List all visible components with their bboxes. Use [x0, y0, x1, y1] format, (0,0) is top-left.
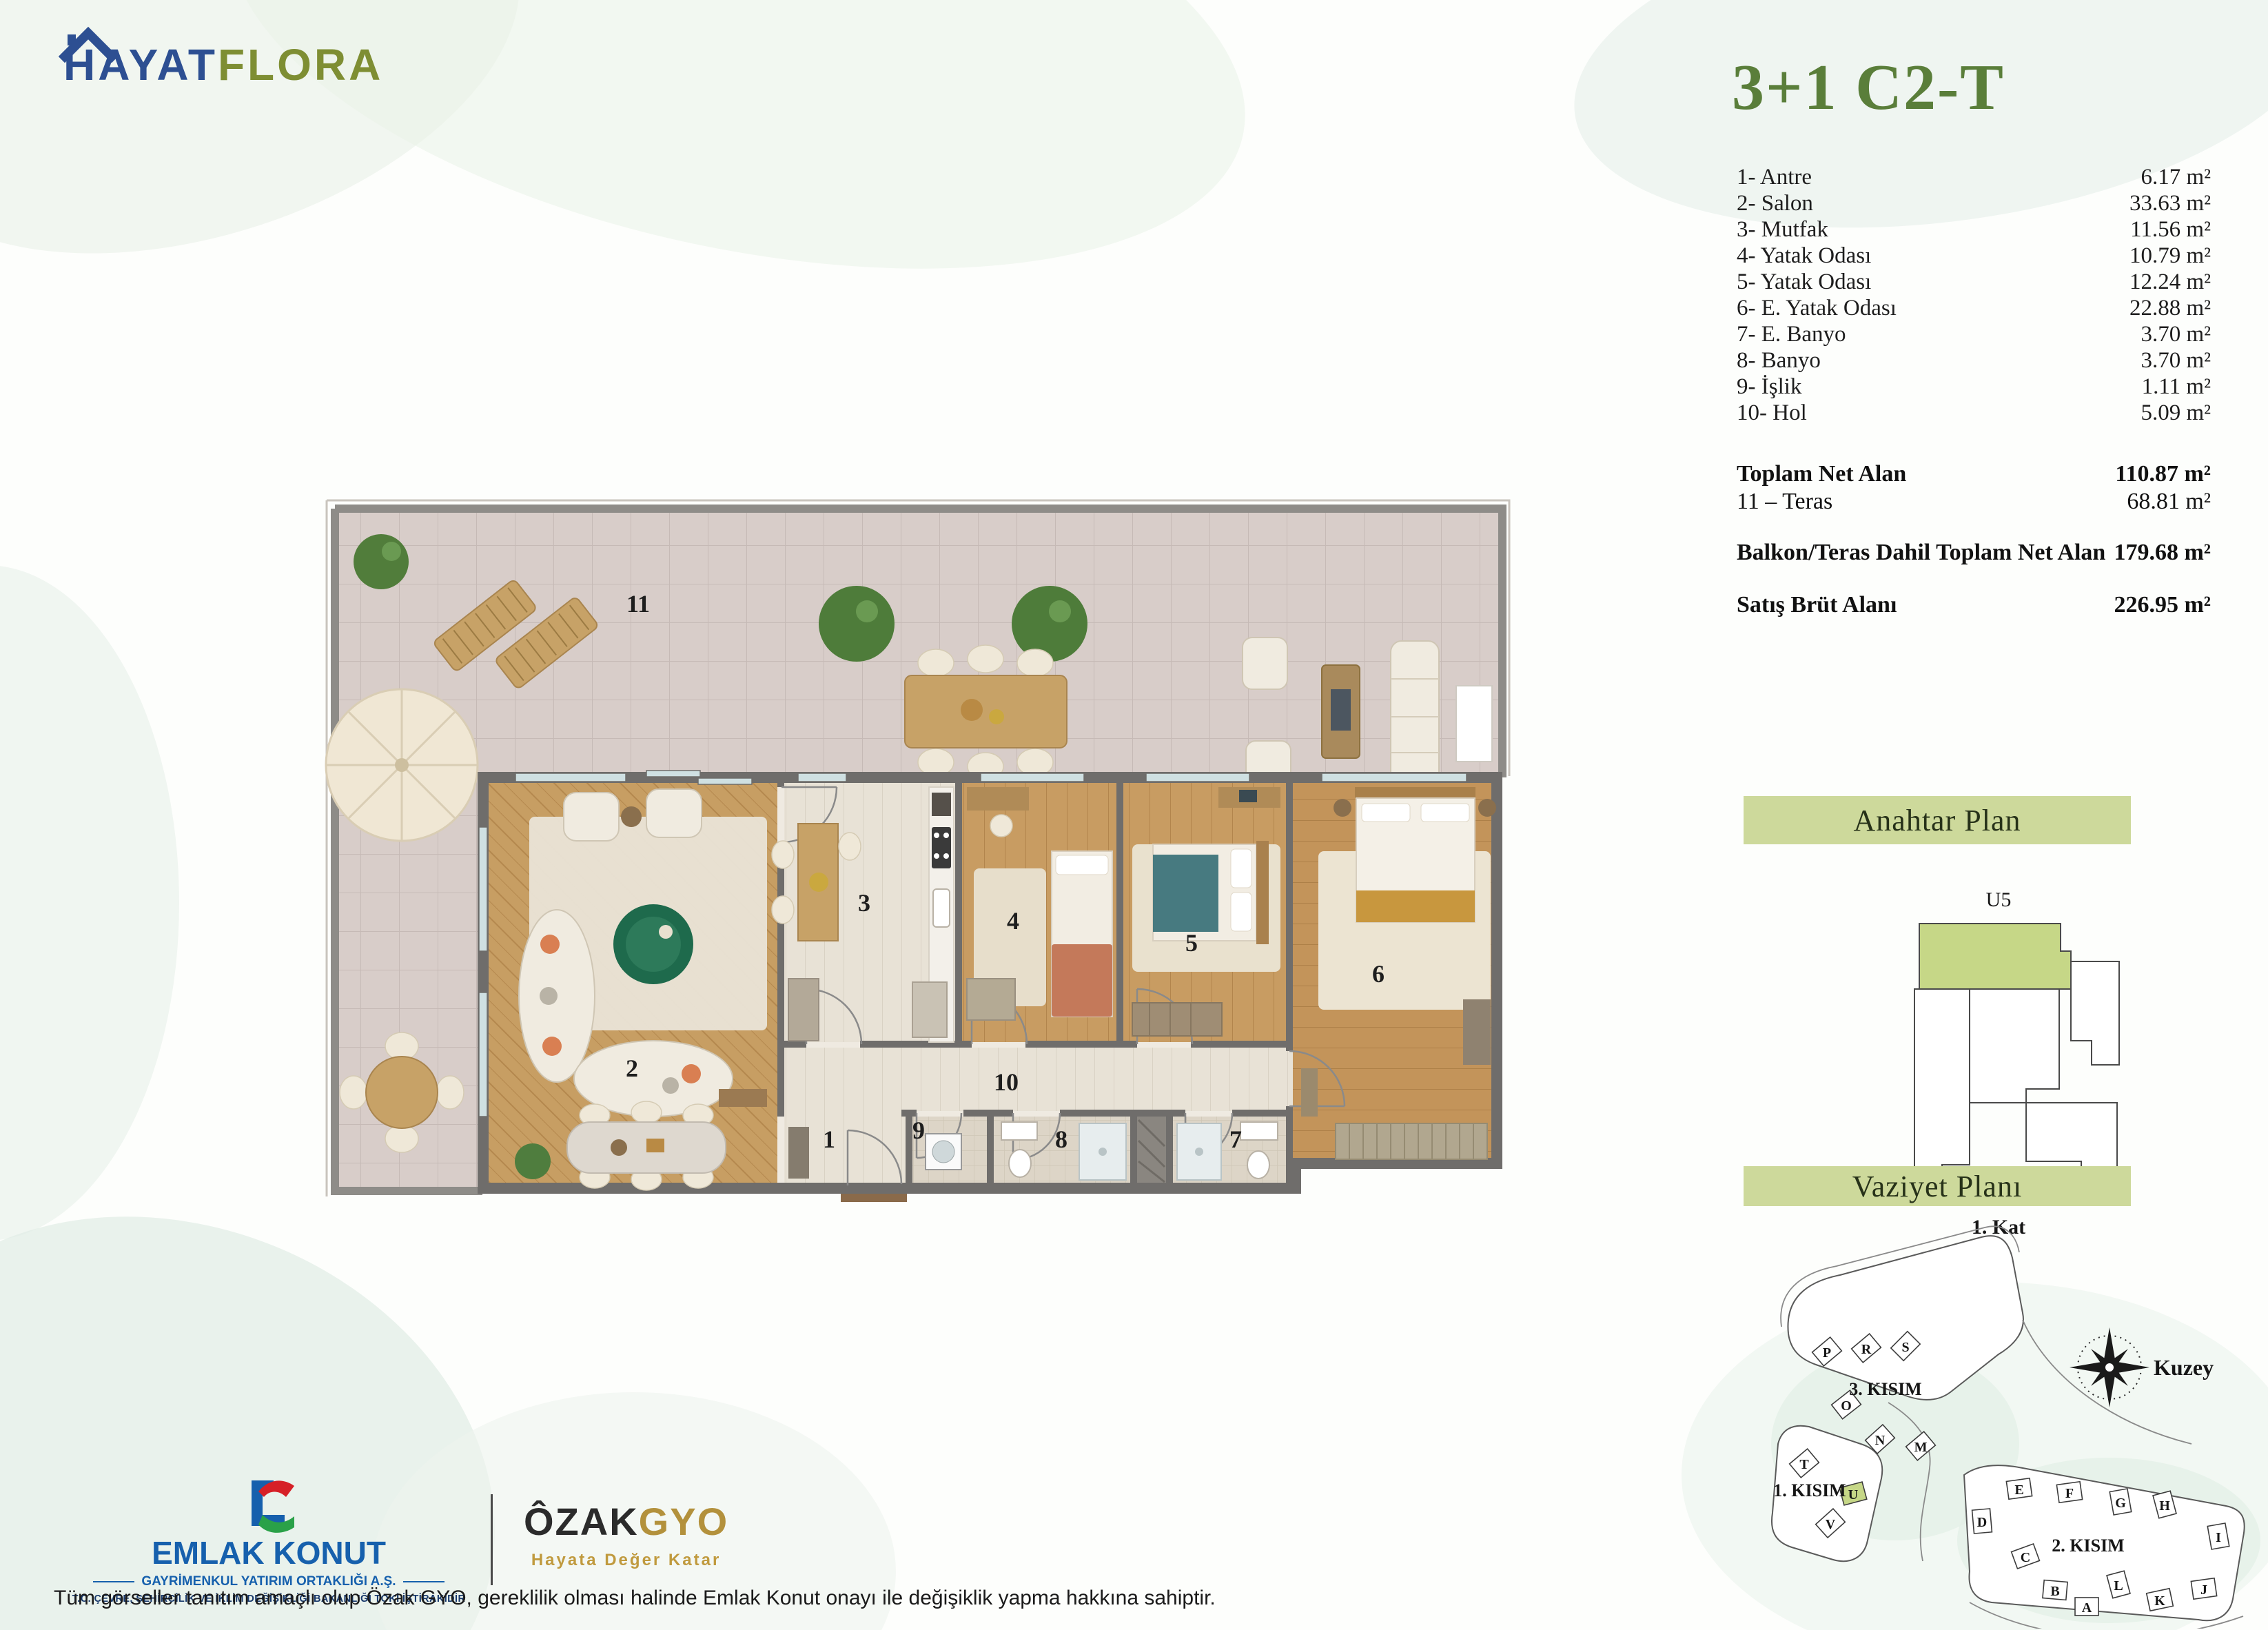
room-area-list: 1- Antre6.17 m² 2- Salon33.63 m² 3- Mutf…	[1737, 164, 2211, 426]
room-number-7: 7	[1229, 1125, 1242, 1153]
key-plan-unit-outline	[2071, 961, 2119, 1065]
floor-plan: 1123456101987	[323, 469, 1518, 1237]
svg-text:U: U	[1848, 1487, 1858, 1502]
site-building-F: F	[2056, 1482, 2082, 1503]
site-building-E: E	[2006, 1478, 2032, 1500]
room-number-8: 8	[1055, 1125, 1067, 1153]
key-plan-header: Anahtar Plan	[1744, 796, 2131, 844]
svg-text:P: P	[1823, 1345, 1831, 1361]
room-row: 10- Hol5.09 m²	[1737, 400, 2211, 426]
ozak-gyo-logo: ÔZAKGYO Hayata Değer Katar	[524, 1502, 728, 1570]
entry-threshold	[841, 1194, 907, 1202]
room-row: 6- E. Yatak Odası22.88 m²	[1737, 295, 2211, 321]
summary-row: Satış Brüt Alanı226.95 m²	[1737, 591, 2211, 619]
room-row: 4- Yatak Odası10.79 m²	[1737, 243, 2211, 269]
svg-text:C: C	[2021, 1550, 2030, 1565]
room-number-6: 6	[1372, 960, 1385, 988]
room-number-11: 11	[626, 590, 650, 618]
hall-floor	[784, 1048, 1293, 1111]
summary-row: 11 – Teras68.81 m²	[1737, 488, 2211, 516]
umbrella	[326, 689, 478, 841]
logo-separator	[491, 1494, 493, 1585]
svg-text:V: V	[1826, 1517, 1836, 1532]
compass	[2070, 1327, 2149, 1407]
unit-title: 3+1 C2-T	[1732, 55, 2005, 120]
site-plan: Kuzey PRSONMTUVEFGHDCBLIAKJ 3. KISIM1. K…	[1750, 1216, 2267, 1629]
background-blob	[0, 565, 179, 1241]
svg-text:B: B	[2050, 1584, 2059, 1599]
svg-text:H: H	[2159, 1498, 2170, 1514]
section-label: 1. KISIM	[1773, 1480, 1846, 1500]
room-number-1: 1	[823, 1125, 835, 1153]
room-row: 2- Salon33.63 m²	[1737, 190, 2211, 216]
section-label: 2. KISIM	[2052, 1536, 2124, 1556]
room-row: 8- Banyo3.70 m²	[1737, 347, 2211, 374]
svg-text:J: J	[2200, 1582, 2207, 1598]
site-building-A: A	[2075, 1598, 2098, 1616]
room-number-10: 10	[994, 1068, 1019, 1096]
summary-row: Balkon/Teras Dahil Toplam Net Alan179.68…	[1737, 539, 2211, 567]
terrace-dining-set	[905, 645, 1067, 780]
hayatflora-logo: HAYATFLORA	[63, 43, 383, 87]
svg-text:D: D	[1977, 1515, 1987, 1530]
svg-text:I: I	[2216, 1530, 2221, 1545]
room-number-5: 5	[1185, 929, 1198, 957]
svg-text:T: T	[1799, 1457, 1809, 1472]
svg-text:A: A	[2082, 1600, 2092, 1616]
room-number-9: 9	[912, 1117, 925, 1144]
site-plan-header: Vaziyet Planı	[1744, 1166, 2131, 1206]
room-row: 1- Antre6.17 m²	[1737, 164, 2211, 190]
ozak-tagline: Hayata Değer Katar	[531, 1551, 721, 1570]
page: HAYATFLORA 3+1 C2-T 1- Antre6.17 m² 2- S…	[0, 0, 2268, 1630]
room-row: 5- Yatak Odası12.24 m²	[1737, 269, 2211, 295]
site-building-G: G	[2109, 1489, 2132, 1515]
room-row: 3- Mutfak11.56 m²	[1737, 216, 2211, 243]
site-building-I: I	[2207, 1523, 2229, 1549]
room-row: 7- E. Banyo3.70 m²	[1737, 321, 2211, 347]
area-summary: Toplam Net Alan110.87 m² 11 – Teras68.81…	[1737, 460, 2211, 619]
svg-text:M: M	[1914, 1440, 1928, 1455]
emlak-konut-logo: EMLAK KONUT GAYRİMENKUL YATIRIM ORTAKLIĞ…	[55, 1474, 482, 1604]
site-building-J: J	[2191, 1578, 2216, 1600]
key-plan-unit-outline	[1970, 989, 2059, 1103]
room-number-2: 2	[626, 1055, 638, 1082]
north-label: Kuzey	[2154, 1355, 2214, 1380]
summary-row: Toplam Net Alan110.87 m²	[1737, 460, 2211, 488]
tree	[1012, 586, 1087, 662]
section-label: 3. KISIM	[1849, 1379, 1921, 1399]
svg-text:K: K	[2154, 1593, 2165, 1609]
tree	[819, 586, 895, 662]
logo-house-roof-icon	[58, 25, 134, 66]
key-plan-block-label: U5	[1986, 888, 2012, 911]
plant	[354, 534, 409, 589]
disclaimer-text: Tüm görseller tanıtım amaçlı olup Özak G…	[54, 1587, 1216, 1610]
svg-text:R: R	[1861, 1342, 1872, 1357]
svg-text:S: S	[1901, 1340, 1909, 1355]
svg-text:F: F	[2065, 1486, 2074, 1501]
emlak-konut-icon	[231, 1474, 307, 1537]
svg-text:L: L	[2114, 1578, 2123, 1593]
terrace-unit	[1456, 686, 1492, 762]
key-plan-unit-outline	[1914, 989, 1970, 1185]
site-building-B: B	[2043, 1580, 2067, 1600]
logo-flora: FLORA	[218, 43, 383, 87]
room-number-3: 3	[858, 889, 870, 917]
svg-text:E: E	[2014, 1483, 2023, 1498]
svg-text:N: N	[1875, 1433, 1886, 1448]
room-number-4: 4	[1007, 907, 1019, 935]
svg-text:O: O	[1841, 1398, 1852, 1414]
key-plan-highlighted-unit	[1919, 924, 2071, 989]
room-row: 9- İşlik1.11 m²	[1737, 374, 2211, 400]
site-building-D: D	[1972, 1509, 1992, 1534]
svg-text:G: G	[2115, 1496, 2126, 1511]
